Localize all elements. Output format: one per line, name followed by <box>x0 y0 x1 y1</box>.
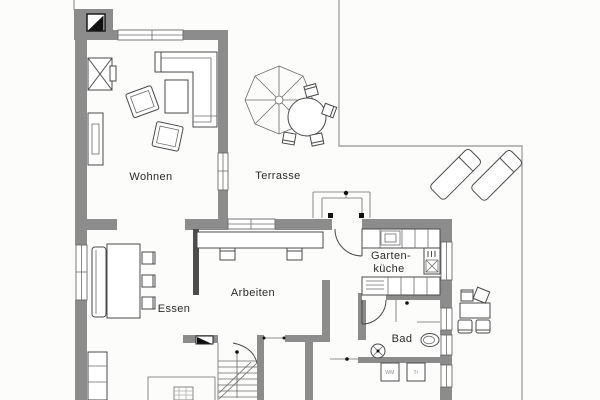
window-essen-left <box>76 245 87 300</box>
dining-table <box>107 244 140 318</box>
kitchen-counter-top <box>362 229 440 248</box>
window-wohnen-top <box>118 30 183 40</box>
wall-cabinet <box>88 352 107 400</box>
label-wohnen: Wohnen <box>129 171 172 183</box>
label-gartenkueche-1: Garten- <box>371 250 411 262</box>
coffee-table <box>165 80 188 113</box>
window-bad-right-2 <box>441 335 452 355</box>
window-bad-right-1 <box>441 308 452 330</box>
label-terrasse: Terrasse <box>255 170 300 182</box>
kitchen-stove <box>424 248 440 274</box>
window-laundry-right <box>441 365 452 387</box>
label-gartenkueche-2: küche <box>373 263 404 275</box>
room-essen <box>92 244 155 318</box>
washbasin <box>421 334 439 347</box>
washing-machine-label: WM <box>385 370 394 376</box>
dining-chairs <box>142 252 155 309</box>
label-bad: Bad <box>392 333 413 345</box>
label-essen: Essen <box>158 303 191 315</box>
floor-plan-drawing: WM Tr Wohnen Terrasse Essen Arbeiten Gar… <box>0 0 600 400</box>
sideboard <box>88 113 103 165</box>
dryer-label: Tr <box>414 370 419 376</box>
desk <box>197 232 323 248</box>
tv-armchair <box>88 58 116 90</box>
kitchen-counter-bottom <box>362 277 440 295</box>
corner-marker-icon <box>87 14 105 31</box>
floor-plan: WM Tr Wohnen Terrasse Essen Arbeiten Gar… <box>0 0 600 400</box>
window-wohnen-right <box>218 153 228 190</box>
window-gartenkueche-right <box>441 242 452 280</box>
section-wedge-icon <box>196 336 213 344</box>
floor-drain <box>371 344 385 358</box>
armchair-2 <box>152 121 184 151</box>
label-arbeiten: Arbeiten <box>231 287 275 299</box>
window-arbeiten-top <box>228 219 275 229</box>
dining-bench <box>92 247 106 317</box>
